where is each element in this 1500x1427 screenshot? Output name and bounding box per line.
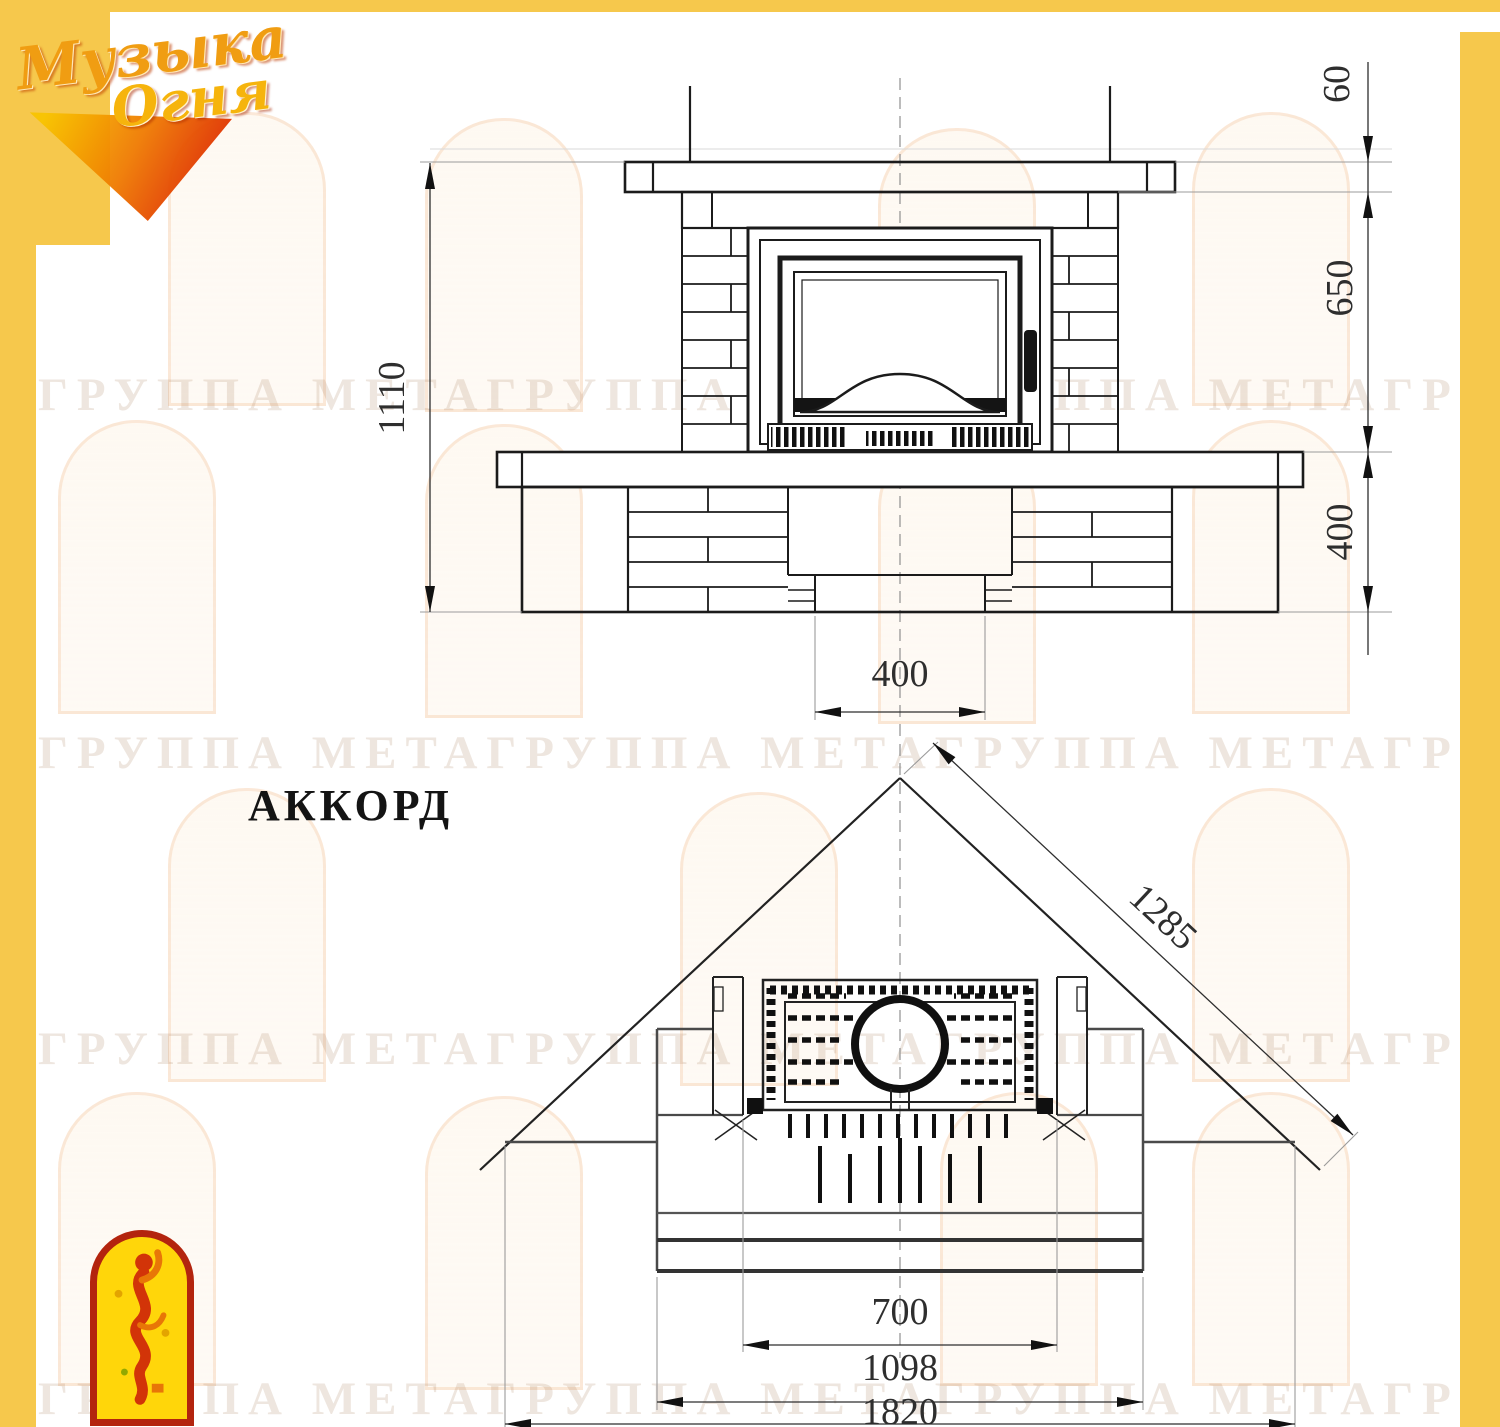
flame-dancer-icon bbox=[97, 1237, 187, 1419]
plan-view-dimensions bbox=[505, 742, 1358, 1427]
dim-label-opening-height: 650 bbox=[1318, 260, 1362, 317]
spec-sheet-page: ГРУППА МЕТАГРУППА МЕТАГРУППА МЕТАГРУППА … bbox=[0, 0, 1500, 1427]
dim-label-recess-width: 400 bbox=[872, 652, 929, 696]
dim-label-total-height: 1110 bbox=[370, 361, 414, 434]
flame-emblem bbox=[90, 1230, 194, 1426]
dim-label-overall-width: 1820 bbox=[862, 1390, 938, 1427]
model-title: АККОРД bbox=[248, 780, 453, 831]
brand-logo: Музыка Огня bbox=[0, 0, 338, 247]
dim-label-firebox-width: 700 bbox=[872, 1290, 929, 1334]
firebox-front bbox=[748, 228, 1052, 452]
plan-view-drawing bbox=[480, 744, 1320, 1358]
dim-label-body-width: 1098 bbox=[862, 1346, 938, 1390]
door-handle bbox=[1024, 330, 1037, 392]
dim-label-shelf-thickness: 60 bbox=[1315, 65, 1359, 103]
dim-label-base-height: 400 bbox=[1318, 504, 1362, 561]
front-elevation-drawing bbox=[430, 78, 1392, 742]
